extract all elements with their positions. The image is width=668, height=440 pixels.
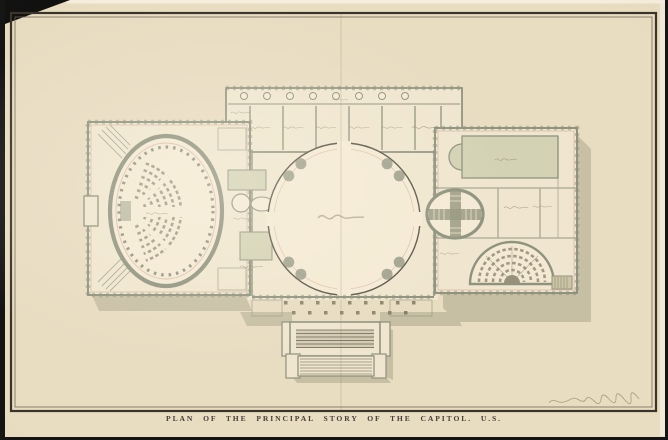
elliptical-stair-vestibule xyxy=(427,190,483,238)
house-wing xyxy=(84,122,250,295)
plan-caption: PLAN OF THE PRINCIPAL STORY OF THE CAPIT… xyxy=(0,414,668,423)
library-room xyxy=(462,136,558,178)
senate-wing xyxy=(427,128,577,293)
west-entrance xyxy=(84,196,98,226)
stair-room xyxy=(552,276,572,289)
scanned-drawing: PLAN OF THE PRINCIPAL STORY OF THE CAPIT… xyxy=(0,0,668,440)
speaker-dais xyxy=(120,201,131,221)
floor-plan-drawing xyxy=(0,0,668,440)
